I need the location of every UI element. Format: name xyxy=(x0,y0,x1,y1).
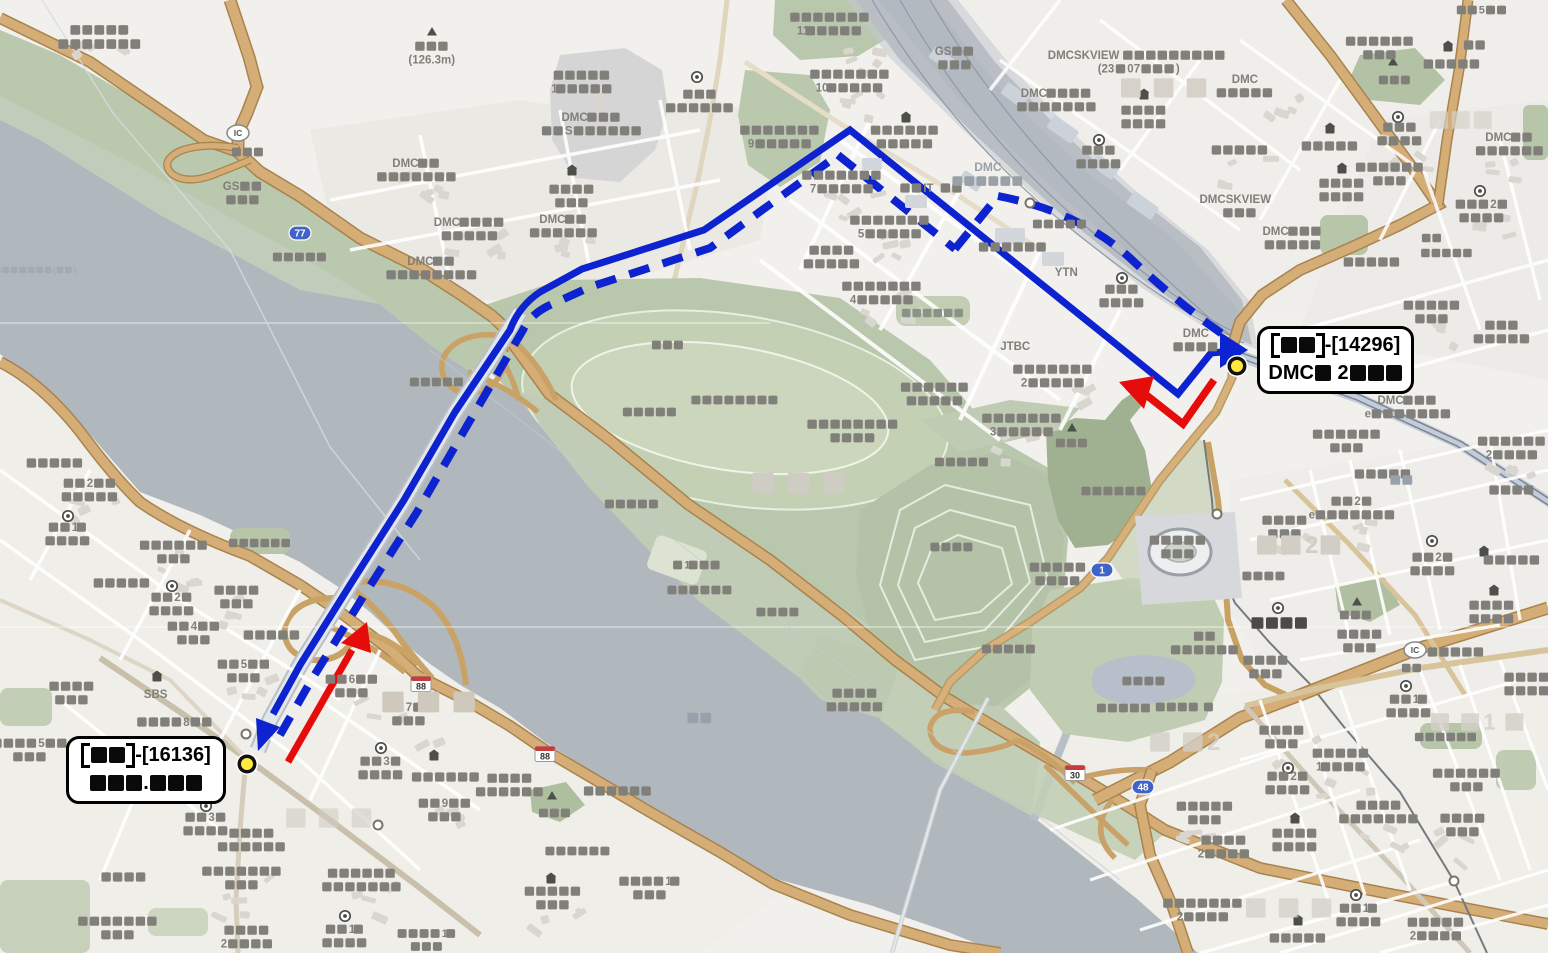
svg-text:88: 88 xyxy=(540,752,550,762)
svg-text:3: 3 xyxy=(383,756,389,768)
svg-text:2: 2 xyxy=(1198,849,1204,861)
svg-text:JTBC: JTBC xyxy=(1000,341,1030,353)
svg-text:GS: GS xyxy=(223,181,240,193)
svg-text:7: 7 xyxy=(406,702,412,714)
svg-text:2: 2 xyxy=(221,939,227,951)
svg-text:10: 10 xyxy=(816,83,829,95)
svg-text:IT: IT xyxy=(923,183,933,195)
svg-text:1: 1 xyxy=(1483,710,1495,735)
svg-text:48: 48 xyxy=(1137,783,1149,794)
svg-text:SBS: SBS xyxy=(144,689,168,701)
svg-text:DMCSKVIEW: DMCSKVIEW xyxy=(1200,194,1272,206)
svg-text:e: e xyxy=(1309,510,1315,522)
svg-text:): ) xyxy=(1176,64,1180,76)
svg-text:88: 88 xyxy=(416,682,426,692)
svg-text:3: 3 xyxy=(208,812,214,824)
svg-text:5: 5 xyxy=(241,659,248,671)
svg-text:IC: IC xyxy=(1411,645,1420,655)
svg-text:(23: (23 xyxy=(1098,64,1115,76)
svg-text:(: ( xyxy=(53,265,56,275)
svg-text:YTN: YTN xyxy=(1055,267,1078,279)
svg-text:2: 2 xyxy=(1177,912,1183,924)
svg-text:DMCSKVIEW: DMCSKVIEW xyxy=(1048,50,1120,62)
svg-text:DMC: DMC xyxy=(1232,74,1258,86)
svg-text:5: 5 xyxy=(858,229,865,241)
svg-text:(126.3m): (126.3m) xyxy=(408,55,455,67)
svg-text:DMC: DMC xyxy=(1183,328,1209,340)
svg-text:DMC: DMC xyxy=(562,112,588,124)
svg-text:5: 5 xyxy=(1479,5,1485,17)
svg-text:6: 6 xyxy=(349,674,355,686)
svg-text:DMC: DMC xyxy=(392,158,418,170)
svg-text:DMC: DMC xyxy=(1263,226,1289,238)
svg-text:S: S xyxy=(565,126,573,138)
svg-text:DMC: DMC xyxy=(974,160,1002,174)
svg-text:9: 9 xyxy=(442,798,448,810)
svg-text:30: 30 xyxy=(1070,771,1080,781)
svg-text:DMC: DMC xyxy=(1485,132,1511,144)
svg-text:5: 5 xyxy=(38,738,45,750)
svg-text:2: 2 xyxy=(1490,199,1496,211)
svg-text:2: 2 xyxy=(1207,729,1220,756)
svg-text:3: 3 xyxy=(990,427,996,439)
svg-text:DMC: DMC xyxy=(434,217,460,229)
svg-text:7: 7 xyxy=(810,184,816,196)
svg-text:2: 2 xyxy=(174,592,180,604)
svg-text:8: 8 xyxy=(183,717,190,729)
svg-text:2: 2 xyxy=(1290,771,1296,783)
svg-text:e: e xyxy=(1365,409,1371,421)
svg-text:2: 2 xyxy=(1435,552,1441,564)
svg-text:07: 07 xyxy=(1127,64,1140,76)
svg-text:GS: GS xyxy=(935,46,952,58)
svg-text:1: 1 xyxy=(1099,566,1105,577)
svg-text:2: 2 xyxy=(1354,496,1360,508)
svg-text:2: 2 xyxy=(1021,378,1027,390)
svg-text:77: 77 xyxy=(294,229,306,240)
svg-text:9: 9 xyxy=(748,139,754,151)
svg-text:4: 4 xyxy=(191,621,198,633)
svg-text:DMC: DMC xyxy=(407,256,433,268)
svg-text:2: 2 xyxy=(1486,450,1492,462)
svg-text:DMC: DMC xyxy=(1378,395,1404,407)
svg-text:IC: IC xyxy=(234,128,243,138)
svg-text:DMC: DMC xyxy=(1021,88,1047,100)
svg-text:2: 2 xyxy=(1410,931,1416,943)
svg-text:2: 2 xyxy=(87,478,93,490)
svg-text:4: 4 xyxy=(850,295,857,307)
svg-text:2: 2 xyxy=(1305,532,1318,559)
svg-text:DMC: DMC xyxy=(539,214,565,226)
svg-text:): ) xyxy=(74,265,77,275)
